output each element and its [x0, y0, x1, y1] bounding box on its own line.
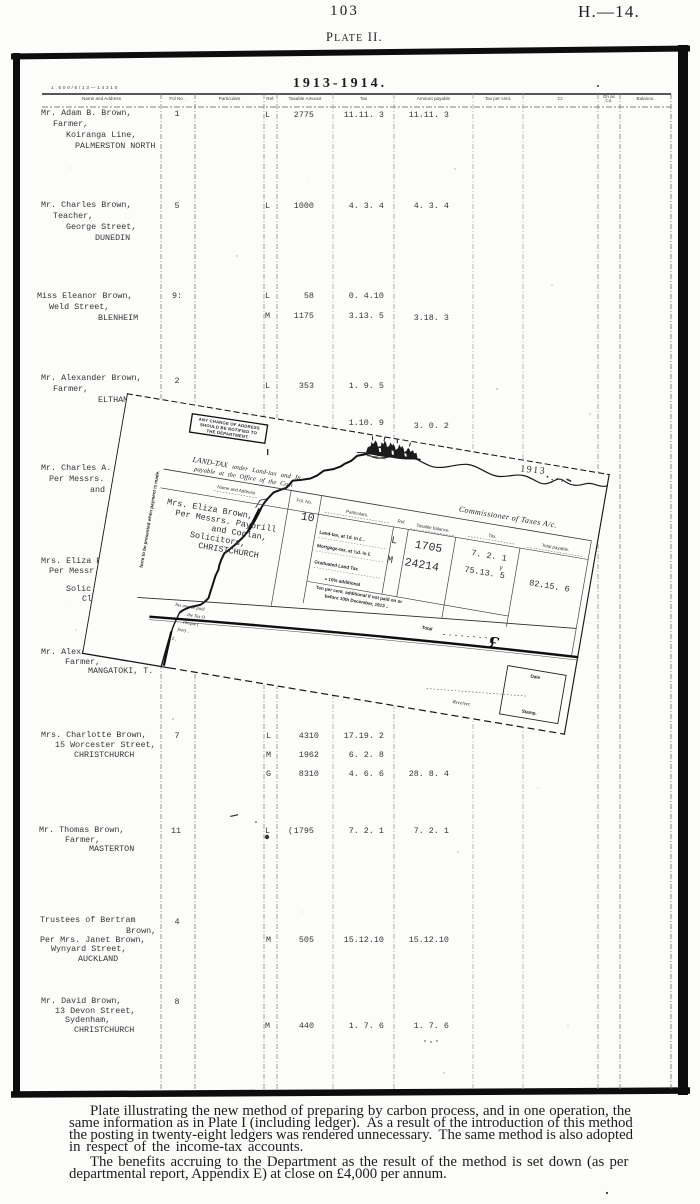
svg-text:10: 10 [300, 510, 316, 525]
svg-text:£ .: £ . [172, 636, 177, 642]
